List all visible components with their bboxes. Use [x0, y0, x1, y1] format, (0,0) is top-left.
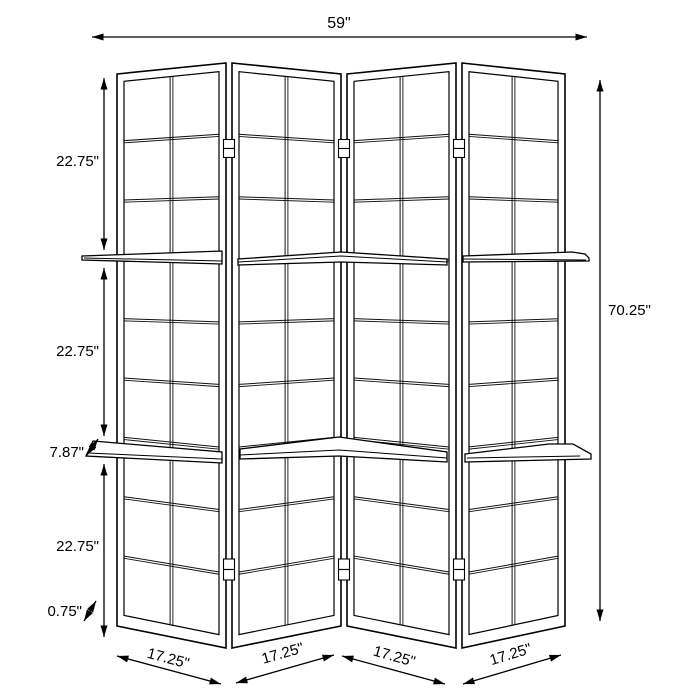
- hinge-joint-2: [339, 140, 350, 149]
- panel-4: [462, 63, 565, 648]
- dim-panel-1-label: 17.25": [145, 645, 191, 673]
- dim-shelf-depth-label: 7.87": [49, 444, 84, 461]
- hinge-joint-3: [454, 149, 465, 158]
- panel-3: [347, 63, 456, 648]
- panel-2: [232, 63, 341, 648]
- dim-section-2-label: 22.75": [56, 343, 99, 360]
- dim-overall-width-label: 59": [327, 15, 350, 32]
- panel-1: [117, 63, 226, 648]
- hinge-joint-2: [339, 570, 350, 581]
- dim-overall-height-label: 70.25": [608, 302, 651, 319]
- dim-frame-thickness-line: [84, 601, 96, 621]
- hinge-joint-1: [224, 570, 235, 581]
- diagram-canvas: 59" 70.25" 22.75" 22.75" 22.75" 7.87" 0.…: [0, 0, 700, 700]
- dim-panel-2-label: 17.25": [260, 640, 306, 668]
- hinge-joint-1: [224, 140, 235, 149]
- hinge-joint-1: [224, 559, 235, 570]
- hinge-joint-2: [339, 149, 350, 158]
- hinge-joint-3: [454, 570, 465, 581]
- dim-frame-thickness-label: 0.75": [47, 603, 82, 620]
- hinge-joint-1: [224, 149, 235, 158]
- dim-section-1-label: 22.75": [56, 153, 99, 170]
- hinge-joint-2: [339, 559, 350, 570]
- hinge-joint-3: [454, 559, 465, 570]
- hinge-joint-3: [454, 140, 465, 149]
- shelf-upper-segment-1: [82, 251, 222, 264]
- dim-section-3-label: 22.75": [56, 538, 99, 555]
- dimension-diagram: 59" 70.25" 22.75" 22.75" 22.75" 7.87" 0.…: [0, 0, 700, 700]
